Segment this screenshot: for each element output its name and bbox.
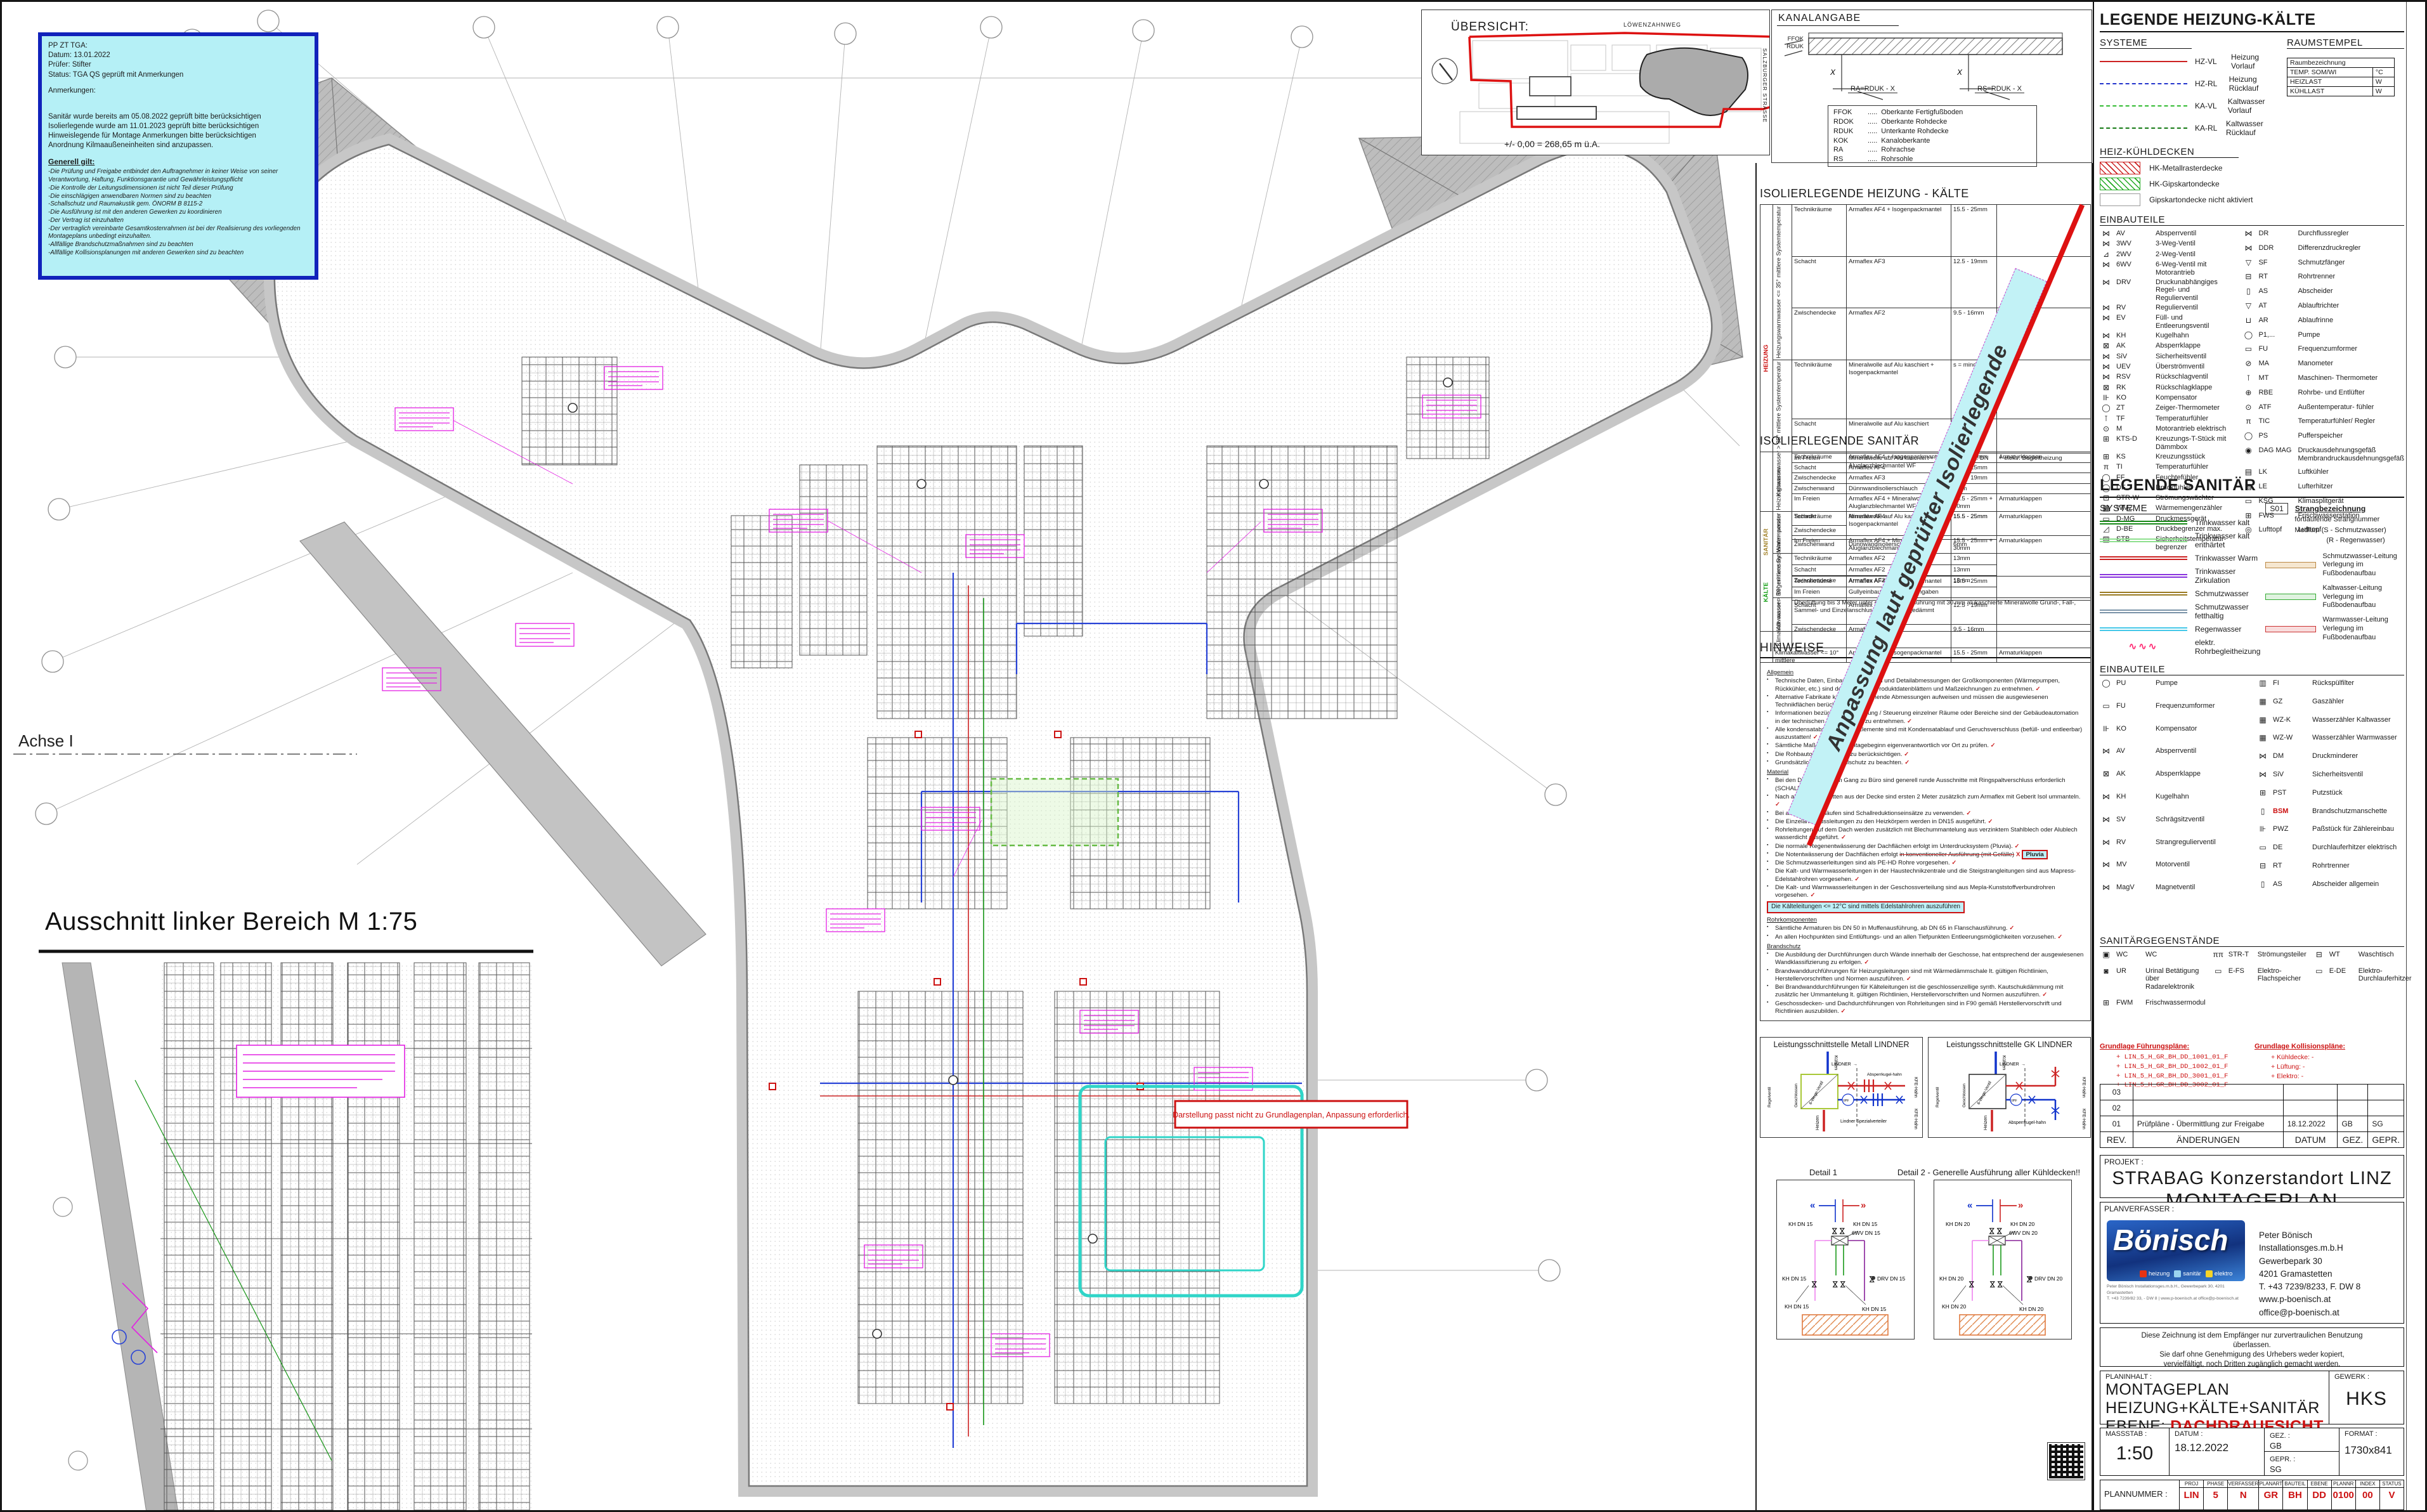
component-symbol-icon: ⋈ (2100, 304, 2112, 313)
svg-text:KFE-Hahn: KFE-Hahn (2081, 1109, 2086, 1130)
abbrev-row: FFOK ..... Oberkante Fertigfußboden (1833, 108, 2031, 117)
component-symbol-icon: ⋈ (2242, 244, 2255, 253)
svg-text:6-Wege-Ventil: 6-Wege-Ventil (1977, 1080, 1993, 1105)
review-header-line: Status: TGA QS geprüft mit Anmerkungen (48, 70, 308, 80)
legend-component-item: ⊺ MT Maschinen- Thermometer (2242, 374, 2404, 383)
legend-component-item: ⋈ 6WV 6-Weg-Ventil mit Motorantrieb (2100, 261, 2233, 277)
component-symbol-icon: ⊠ (2100, 342, 2112, 351)
svg-text:KH DN 20: KH DN 20 (1946, 1221, 1970, 1227)
svg-text:KH DN 15: KH DN 15 (1785, 1303, 1809, 1310)
right-column-divider (2093, 2, 2094, 1512)
component-symbol-icon: ⋈ (2100, 353, 2112, 362)
legend-component-item: ⋈ DM Druckminderer (2256, 752, 2404, 761)
schnittstelle-metall: Leistungsschnittstelle Metall LINDNER Kü… (1760, 1037, 1923, 1138)
plannummer-column: INDEX 00 (2355, 1480, 2379, 1509)
floor-pipe-item: Kaltwasser-Leitung Verlegung im Fußboden… (2265, 584, 2404, 610)
achse-label: Achse I (13, 731, 357, 754)
component-symbol-icon: ⊪ (2100, 394, 2112, 403)
legend-component-item: ⊞ KS Kreuzungsstück (2100, 453, 2233, 462)
svg-text:KFE-Hahn: KFE-Hahn (1913, 1077, 1918, 1098)
anmerkung-line: Sanitär wurde bereits am 05.08.2022 gepr… (48, 112, 308, 122)
massstab-value: 1:50 (2105, 1443, 2164, 1464)
address-line: T. +43 7239/8233, F. DW 8 (2259, 1281, 2397, 1293)
component-symbol-icon: ▭ (2256, 844, 2269, 852)
hinweise-brand-title: Brandschutz (1767, 943, 2084, 951)
component-symbol-icon: ⊙ (2242, 403, 2255, 412)
svg-text:Absperrkugel-hahn: Absperrkugel-hahn (1867, 1072, 1902, 1077)
component-symbol-icon: ▭ (2100, 702, 2112, 711)
system-line-item: Schmutzwasser fetthaltig (2100, 603, 2260, 620)
legend-component-item: π TI Temperaturfühler (2100, 463, 2233, 472)
component-symbol-icon: ◯ (2242, 331, 2255, 340)
massstab-row: MASSSTAB :1:50 DATUM :18.12.2022 GEZ. :G… (2100, 1428, 2404, 1476)
fixture-symbol-icon: ▣ (2100, 951, 2112, 960)
component-symbol-icon: ▦ (2256, 734, 2269, 743)
legend-component-item: ▯ AS Abscheider (2242, 287, 2404, 296)
svg-text:»: » (1861, 1200, 1866, 1211)
projekt-label: PROJEKT : (2100, 1156, 2404, 1168)
plannummer-column: BAUTEIL BH (2282, 1480, 2307, 1509)
pipe-style-swatch (2265, 594, 2316, 600)
red-correction-note: Darstellung passt nicht zu Grundlagenpla… (1173, 1101, 1410, 1128)
hinweise-rohr-title: Rohrkomponenten (1767, 916, 2084, 924)
company-address: Peter Bönisch Installationsges.m.b.HGewe… (2259, 1220, 2397, 1319)
component-symbol-icon: π (2100, 463, 2112, 472)
svg-text:6WV DN 15: 6WV DN 15 (1852, 1230, 1880, 1236)
decken-title: HEIZ-KÜHLDECKEN (2100, 147, 2239, 158)
component-symbol-icon: ⊞ (2256, 789, 2269, 798)
legend-component-item: ⋈ SV Schrägsitzventil (2100, 816, 2248, 824)
line-style-sample (2100, 627, 2187, 631)
hatch-swatch (2100, 178, 2140, 190)
svg-text:KH DN 15: KH DN 15 (1788, 1221, 1813, 1227)
hinweis-item: Geschossdecken- und Dachdurchführungen v… (1767, 1000, 2084, 1016)
svg-text:«: « (1967, 1200, 1972, 1211)
fixture-item: ⊞ FWM Frischwassermodul (2100, 999, 2206, 1008)
component-symbol-icon: ▽ (2242, 259, 2255, 268)
legend-component-item: ⋈ RV Regulierventil (2100, 304, 2233, 313)
review-header-line: Datum: 13.01.2022 (48, 51, 308, 60)
logo-trade-chip: sanitär (2174, 1270, 2201, 1277)
line-style-sample (2100, 609, 2187, 613)
legend-component-item: ⊕ RBE Rohrbe- und Entlüfter (2242, 389, 2404, 398)
component-symbol-icon: ⊺ (2100, 415, 2112, 424)
ra-formula: RA=RDUK - X (1848, 85, 1897, 93)
svg-text:«: « (1810, 1200, 1815, 1211)
logo-address-line: Peter Bönisch Installationsges.m.b.H., G… (2107, 1284, 2245, 1302)
legend-component-item: ⋈ SiV Sicherheitsventil (2100, 353, 2233, 362)
component-symbol-icon: ◉ (2242, 446, 2255, 462)
component-symbol-icon: ⋈ (2256, 771, 2269, 779)
component-symbol-icon: ▯ (2256, 807, 2269, 816)
svg-text:X: X (1956, 68, 1963, 77)
hinweis-item: Informationen bezüglich der Regelung / S… (1767, 710, 2084, 726)
anmerkung-line: Anordnung Kilmaaußeneinheiten sind anzup… (48, 141, 308, 150)
legend-component-item: ◯ PU Pumpe (2100, 679, 2248, 688)
hinweis-item: Die Ausbildung der Durchführungen durch … (1767, 951, 2084, 967)
component-symbol-icon: ⋈ (2242, 230, 2255, 238)
gez-value: GB (2270, 1441, 2334, 1450)
component-symbol-icon: ⋈ (2256, 752, 2269, 761)
revision-table: 03 02 01Prüfpläne - Übermittlung zur Fre… (2100, 1084, 2404, 1148)
svg-text:»: » (2018, 1200, 2023, 1211)
svg-text:KH DN 15: KH DN 15 (1782, 1275, 1807, 1282)
fixture-item: ⊟ WT Waschtisch (2313, 951, 2412, 960)
review-header-line: PP ZT TGA: (48, 41, 308, 51)
anmerkung-line: Hinweislegende für Montage Anmerkungen b… (48, 131, 308, 141)
svg-text:⋈: ⋈ (1967, 1281, 1976, 1288)
svg-text:Geschlossen: Geschlossen (1794, 1083, 1799, 1107)
generell-line: -Allfällige Kollisionsplanungen mit ande… (48, 249, 308, 257)
planverfasser-label: PLANVERFASSER : (2100, 1202, 2404, 1215)
svg-text:⋈: ⋈ (1838, 1281, 1847, 1288)
svg-text:KH DN 20: KH DN 20 (1942, 1303, 1967, 1310)
system-line-item: KA-VL Kaltwasser Vorlauf (2100, 97, 2281, 115)
legend-component-item: ⊟ RT Rohrtrenner (2242, 273, 2404, 282)
review-header: PP ZT TGA:Datum: 13.01.2022Prüfer: Stift… (48, 41, 308, 80)
ceiling-type-item: Gipskartondecke nicht aktiviert (2100, 193, 2281, 206)
component-symbol-icon: ⋈ (2100, 816, 2112, 824)
qr-code (2048, 1443, 2085, 1480)
line-style-sample (2100, 538, 2187, 542)
svg-text:KH DN 20: KH DN 20 (2010, 1221, 2035, 1227)
plannummer-column: PHASE 5 (2203, 1480, 2227, 1509)
svg-text:LINDNER: LINDNER (1832, 1062, 1851, 1067)
pipe-style-swatch (2265, 626, 2316, 632)
gegenstaende-title: SANITÄRGEGENSTÄNDE (2100, 935, 2404, 947)
component-symbol-icon: ⊠ (2100, 384, 2112, 393)
svg-text:X: X (1830, 68, 1836, 77)
abbrev-row: KOK ..... Kanaloberkante (1833, 136, 2031, 146)
planinhalt-label: PLANINHALT : (2105, 1373, 2324, 1381)
review-header-line: Prüfer: Stifter (48, 60, 308, 70)
hinweis-item: Die normale Regenentwässerung der Dachfl… (1767, 843, 2084, 850)
component-symbol-icon: ⊞ (2100, 435, 2112, 451)
legend-component-item: ⋈ DDR Differenzdruckregler (2242, 244, 2404, 253)
component-symbol-icon: ⋈ (2100, 261, 2112, 277)
component-symbol-icon: ⋈ (2100, 883, 2112, 892)
ceiling-type-item: HK-Metallrasterdecke (2100, 162, 2281, 174)
component-symbol-icon: ⊠ (2100, 770, 2112, 779)
system-line-item: Trinkwasser Warm (2100, 554, 2260, 563)
legend-component-item: ⋈ SiV Sicherheitsventil (2256, 771, 2404, 779)
legend-component-item: ⋈ 3WV 3-Weg-Ventil (2100, 240, 2233, 249)
system-line-item: Schmutzwasser (2100, 589, 2260, 598)
legend-component-item: ⋈ KH Kugelhahn (2100, 793, 2248, 802)
address-line: Gewerbepark 30 (2259, 1255, 2397, 1268)
detail2-title: Detail 2 - Generelle Ausführung aller Kü… (1887, 1168, 2091, 1177)
plannummer-column: PLANNR 0100 (2331, 1480, 2355, 1509)
svg-text:⋈: ⋈ (1831, 1281, 1840, 1288)
svg-text:⋈: ⋈ (1995, 1227, 2004, 1235)
system-line-item: HZ-VL Heizung Vorlauf (2100, 53, 2281, 70)
svg-text:DRV DN 15: DRV DN 15 (1877, 1275, 1906, 1282)
legend-component-item: ⊿ 2WV 2-Weg-Ventil (2100, 251, 2233, 259)
legend-component-item: ◯ P1,... Pumpe (2242, 331, 2404, 340)
overview-title: ÜBERSICHT: (1451, 20, 1529, 34)
component-symbol-icon: ⋈ (2100, 314, 2112, 330)
plan-sheet: Darstellung passt nicht zu Grundlagenpla… (0, 0, 2427, 1512)
legend-component-item: ⋈ EV Füll- und Entleerungsventil (2100, 314, 2233, 330)
fixture-item: ▭ E-FS Elektro-Flachspeicher (2212, 967, 2307, 983)
component-symbol-icon: ⊟ (2256, 862, 2269, 871)
legend-component-item: ▽ AT Ablauftrichter (2242, 302, 2404, 311)
legend-component-item: ⊪ KO Kompensator (2100, 725, 2248, 734)
component-symbol-icon: ▤ (2242, 468, 2255, 477)
component-symbol-icon: ▽ (2242, 302, 2255, 311)
fixture-item: ▭ E-DE Elektro-Durchlauferhitzer (2313, 967, 2412, 983)
address-line: office@p-boenisch.at (2259, 1307, 2397, 1319)
detail2-box: « » ⋈ ⋈ KH DN 20 KH DN 20 6WV DN 20 (1934, 1180, 2072, 1339)
component-symbol-icon: ⋈ (2100, 230, 2112, 238)
component-symbol-icon: ⊪ (2256, 825, 2269, 834)
hinweis-item: Die Kalt- und Warmwasserleitungen in der… (1767, 884, 2084, 900)
hinweis-item: Alle kondensatabscheidenden Elemente sin… (1767, 726, 2084, 742)
svg-text:→: → (2021, 1062, 2026, 1067)
legend-component-item: ⊙ M Motorantrieb elektrisch (2100, 425, 2233, 434)
anmerkungen-list: Sanitär wurde bereits am 05.08.2022 gepr… (48, 112, 308, 151)
component-symbol-icon: ⊞ (2100, 453, 2112, 462)
fuehrungsplaene-title: Grundlage Führungspläne: (2100, 1042, 2249, 1052)
svg-text:IPF: IPF (2012, 1099, 2017, 1103)
abbreviation-table: FFOK ..... Oberkante Fertigfußboden RDOK… (1828, 105, 2037, 167)
component-symbol-icon: ⊙ (2100, 425, 2112, 434)
trade-color-icon (2206, 1270, 2213, 1277)
svg-text:⋈: ⋈ (1988, 1227, 1996, 1235)
legend-component-item: ⋈ MagV Magnetventil (2100, 883, 2248, 892)
fixture-symbol-icon: ⊟ (2313, 951, 2326, 960)
component-symbol-icon: ⋈ (2100, 747, 2112, 756)
legend-component-item: ⊠ AK Absperrklappe (2100, 770, 2248, 779)
component-symbol-icon: ⋈ (2100, 332, 2112, 341)
plannummer-label: PLANNUMMER : (2100, 1480, 2179, 1509)
component-symbol-icon: ◯ (2100, 404, 2112, 413)
planinhalt-block: PLANINHALT : MONTAGEPLAN HEIZUNG+KÄLTE+S… (2100, 1371, 2404, 1424)
component-symbol-icon: ⊘ (2242, 360, 2255, 368)
line-style-sample (2100, 521, 2187, 525)
component-symbol-icon: ▥ (2256, 679, 2269, 688)
fixture-symbol-icon: ππ (2212, 951, 2225, 960)
plan-code: + LIN_5_H_GR_BH_DD_1002_01_F (2100, 1062, 2249, 1072)
fixture-item: ▣ WC WC (2100, 951, 2206, 960)
datum-value: 18.12.2022 (2175, 1442, 2259, 1454)
hinweise-block: HINWEISE Allgemein Technische Daten, Ein… (1760, 641, 2091, 1021)
detail1-title: Detail 1 (1760, 1168, 1887, 1177)
grundlagen: Grundlage Führungspläne: + LIN_5_H_GR_BH… (2100, 1042, 2404, 1090)
line-style-sample: ∿∿∿ (2100, 646, 2187, 648)
plan-code: + LIN_5_H_GR_BH_DD_3001_01_F (2100, 1072, 2249, 1081)
plannummer-column: STATUS V (2379, 1480, 2404, 1509)
planverfasser-block: PLANVERFASSER : Bönisch heizung (2100, 1202, 2404, 1324)
abbrev-row: RDOK ..... Oberkante Rohdecke (1833, 117, 2031, 127)
component-symbol-icon: π (2242, 417, 2255, 426)
pipe-style-swatch (2265, 562, 2316, 568)
legend-component-item: ⊘ MA Manometer (2242, 360, 2404, 368)
svg-text:Lindner Spezialverteiler: Lindner Spezialverteiler (1840, 1119, 1887, 1124)
legend-component-item: ▦ WZ-K Wasserzähler Kaltwasser (2256, 716, 2404, 725)
legend-component-item: ⊔ AR Ablaufrinne (2242, 316, 2404, 325)
schnittstelle-gk: Leistungsschnittstelle GK LINDNER Kühlen… (1928, 1037, 2091, 1138)
svg-text:Darstellung passt nicht zu Gru: Darstellung passt nicht zu Grundlagenpla… (1173, 1111, 1410, 1119)
svg-text:KH DN 15: KH DN 15 (1853, 1221, 1878, 1227)
plan-code: + Kühldecke: - (2255, 1053, 2404, 1062)
line-style-sample (2100, 105, 2187, 107)
einbauteile-title-san: EINBAUTEILE (2100, 664, 2404, 675)
legend-component-item: ⋈ AV Absperrventil (2100, 230, 2233, 238)
isolier-hk-title: ISOLIERLEGENDE HEIZUNG - KÄLTE (1760, 187, 2091, 200)
anmerkung-line: Isolierlegende wurde am 11.01.2023 geprü… (48, 122, 308, 131)
strang-legend: S01 Strangbezeichnung fortlaufende Stran… (2265, 503, 2404, 546)
hinweis-item: Die Schmutzwasserleitungen sind als PE-H… (1767, 859, 2084, 867)
street-label-top: LÖWENZAHNWEG (1623, 22, 1681, 28)
system-line-item: Regenwasser (2100, 625, 2260, 634)
svg-text:KH DN 15: KH DN 15 (1862, 1306, 1887, 1312)
component-symbol-icon: ▦ (2256, 716, 2269, 725)
gewerk-value: HKS (2334, 1388, 2398, 1410)
fixture-symbol-icon: ◙ (2100, 967, 2112, 991)
generell-list: -Die Prüfung und Freigabe entbindet den … (48, 168, 308, 257)
legend-component-item: ⋈ DR Durchflussregler (2242, 230, 2404, 238)
slab-diagram: X X (1772, 28, 2092, 104)
floor-pipe-item: Warmwasser-Leitung Verlegung im Fußboden… (2265, 616, 2404, 642)
legend-san-title: LEGENDE SANITÄR (2100, 476, 2404, 498)
system-line-item: Trinkwasser Zirkulation (2100, 567, 2260, 585)
legende-heizung-kaelte: LEGENDE HEIZUNG-KÄLTE SYSTEME HZ-VL Heiz… (2100, 11, 2404, 553)
component-symbol-icon: ◯ (2100, 679, 2112, 688)
line-style-sample (2100, 556, 2187, 560)
svg-text:⋈: ⋈ (1996, 1281, 2005, 1288)
legend-component-item: ⊪ PWZ Paßstück für Zählereinbau (2256, 825, 2404, 834)
system-line-item: Trinkwasser kalt enthärtet (2100, 531, 2260, 549)
rs-formula: RS=RDUK - X (1975, 85, 2024, 93)
legend-component-item: ⋈ DRV Druckunabhängiges Regel- und Regul… (2100, 278, 2233, 303)
plannummer-column: EBENE DD (2307, 1480, 2331, 1509)
svg-text:⋈: ⋈ (1830, 1227, 1839, 1235)
detail-cutout (39, 951, 533, 1512)
svg-text:IPF: IPF (1844, 1099, 1849, 1103)
component-symbol-icon: ⋈ (2100, 793, 2112, 802)
svg-text:DRV DN 20: DRV DN 20 (2034, 1275, 2063, 1282)
generell-line: -Allfällige Brandschutzmaßnahmen sind zu… (48, 241, 308, 249)
component-symbol-icon: ⋈ (2100, 240, 2112, 249)
address-line: 4201 Gramastetten (2259, 1268, 2397, 1281)
generell-line: -Die einschlägigen anwendbaren Normen si… (48, 193, 308, 201)
legend-component-item: ⋈ AV Absperrventil (2100, 747, 2248, 756)
sanitaergegenstaende: SANITÄRGEGENSTÄNDE ▣ WC WC ◙ UR Urinal B… (2100, 935, 2404, 1015)
format-value: 1730x841 (2345, 1444, 2398, 1457)
legend-component-item: ▥ FI Rückspülfilter (2256, 679, 2404, 688)
kollisionsplaene-title: Grundlage Kollisionspläne: (2255, 1042, 2404, 1052)
abbrev-row: RDUK ..... Unterkante Rohdecke (1833, 127, 2031, 136)
hinweis-item: Die Kalt- und Warmwasserleitungen in der… (1767, 868, 2084, 883)
pluvia-chip: Pluvia (2022, 850, 2047, 859)
generell-line: -Die Prüfung und Freigabe entbindet den … (48, 168, 308, 184)
fixture-item: ◙ UR Urinal Betätigung über Radarelektro… (2100, 967, 2206, 991)
systeme-title-san: SYSTEME (2100, 503, 2192, 514)
legend-component-item: ◉ DAG MAG Druckausdehnungsgefäß Membrand… (2242, 446, 2404, 462)
system-line-item: ∿∿∿ elektr. Rohrbegleitheizung (2100, 638, 2260, 656)
legend-component-item: ◯ PS Pufferspeicher (2242, 432, 2404, 441)
svg-text:KFE-Hahn: KFE-Hahn (2081, 1077, 2086, 1098)
legend-component-item: ⊺ TF Temperaturfühler (2100, 415, 2233, 424)
detail-schematics: Detail 1 Detail 2 - Generelle Ausführung… (1760, 1168, 2091, 1339)
legend-component-item: ⊟ RT Rohrtrenner (2256, 862, 2404, 871)
plan-code: + Elektro: - (2255, 1072, 2404, 1081)
generell-line: -Der Vertrag ist einzuhalten (48, 217, 308, 225)
plannummer-column: VERFASSER N (2227, 1480, 2258, 1509)
legend-component-item: ▦ GZ Gaszähler (2256, 698, 2404, 707)
fixture-symbol-icon: ⊞ (2100, 999, 2112, 1008)
legend-component-item: ▤ LK Luftkühler (2242, 468, 2404, 477)
projekt-block: PROJEKT : STRABAG Konzerstandort LINZ MO… (2100, 1155, 2404, 1198)
boenisch-logo-text: Bönisch (2107, 1220, 2245, 1257)
einbauteile-title: EINBAUTEILE (2100, 214, 2404, 226)
hinweis-item: Alternative Fabrikate können abweichende… (1767, 694, 2084, 710)
svg-text:Regelventil: Regelventil (1936, 1086, 1940, 1107)
hinweis-item: Sämtliche Armaturen bis DN 50 in Muffena… (1767, 925, 2084, 932)
legend-component-item: ▦ WZ-W Wasserzähler Warmwasser (2256, 734, 2404, 743)
legend-component-item: ⊠ AK Absperrklappe (2100, 342, 2233, 351)
logo-trade-chip: heizung (2140, 1270, 2170, 1277)
svg-text:⋈: ⋈ (1810, 1281, 1819, 1288)
hinweis-corrected-item: Die Notentwässerung der Dachflächen erfo… (1767, 851, 2084, 859)
svg-text:Heizen: Heizen (1814, 1116, 1820, 1130)
component-symbol-icon: ⋈ (2100, 838, 2112, 847)
anmerkungen-title: Anmerkungen: (48, 86, 308, 96)
svg-text:KH DN 20: KH DN 20 (1939, 1275, 1964, 1282)
floor-pipe-item: Schmutzwasser-Leitung Verlegung im Fußbo… (2265, 552, 2404, 578)
component-symbol-icon: ⊺ (2242, 374, 2255, 383)
projekt-name: STRABAG Konzerstandort LINZ (2100, 1168, 2404, 1189)
line-style-sample (2100, 83, 2187, 84)
component-symbol-icon: ⋈ (2100, 861, 2112, 870)
legend-component-item: ⋈ UEV Überströmventil (2100, 363, 2233, 372)
generell-line: -Die Ausführung ist mit den anderen Gewe… (48, 209, 308, 217)
legend-component-item: ▭ FU Frequenzumformer (2242, 345, 2404, 354)
legend-component-item: ⊞ KTS-D Kreuzungs-T-Stück mit Dämmbox (2100, 435, 2233, 451)
ceiling-type-item: HK-Gipskartondecke (2100, 178, 2281, 190)
hinweis-item: Brandwanddurchführungen für Heizungsleit… (1767, 968, 2084, 984)
confidentiality-note: Diese Zeichnung ist dem Empfänger nur zu… (2100, 1327, 2404, 1367)
hatch-swatch (2100, 193, 2140, 206)
svg-text:Heizen: Heizen (1982, 1116, 1988, 1130)
legend-component-item: ▭ FU Frequenzumformer (2100, 702, 2248, 711)
system-line-item: Trinkwasser kalt (2100, 518, 2260, 527)
hinweis-item: An allen Hochpunkten sind Entlüftungs- u… (1767, 934, 2084, 941)
generell-line: -Die Kontrolle der Leitungsdimensionen i… (48, 185, 308, 193)
component-symbol-icon: ▯ (2242, 287, 2255, 296)
generell-title: Generell gilt: (48, 157, 308, 167)
component-symbol-icon: ◯ (2242, 432, 2255, 441)
line-style-sample (2100, 61, 2187, 62)
legend-component-item: ⋈ MV Motorventil (2100, 861, 2248, 870)
system-line-item: KA-RL Kaltwasser Rücklauf (2100, 119, 2281, 137)
component-symbol-icon: ⊿ (2100, 251, 2112, 259)
ausschnitt-title: Ausschnitt linker Bereich M 1:75 (45, 908, 417, 936)
legend-component-item: ⊠ RK Rückschlagklappe (2100, 384, 2233, 393)
fixture-item: ππ STR-T Strömungsteiler (2212, 951, 2307, 960)
plan-code: + Lüftung: - (2255, 1062, 2404, 1072)
legend-component-item: ⊪ KO Kompensator (2100, 394, 2233, 403)
raumstempel: RAUMSTEMPEL Raumbezeichnung TEMP. SOM/WI… (2287, 37, 2404, 209)
isolier-san-title: ISOLIERLEGENDE SANITÄR (1760, 434, 2091, 448)
component-symbol-icon: ▦ (2256, 698, 2269, 707)
address-line: www.p-boenisch.at (2259, 1293, 2397, 1306)
leistungsschnittstellen: Leistungsschnittstelle Metall LINDNER Kü… (1760, 1037, 2091, 1138)
component-symbol-icon: ⊪ (2100, 725, 2112, 734)
legend-component-item: ◯ ZT Zeiger-Thermometer (2100, 404, 2233, 413)
line-style-sample (2100, 127, 2187, 129)
